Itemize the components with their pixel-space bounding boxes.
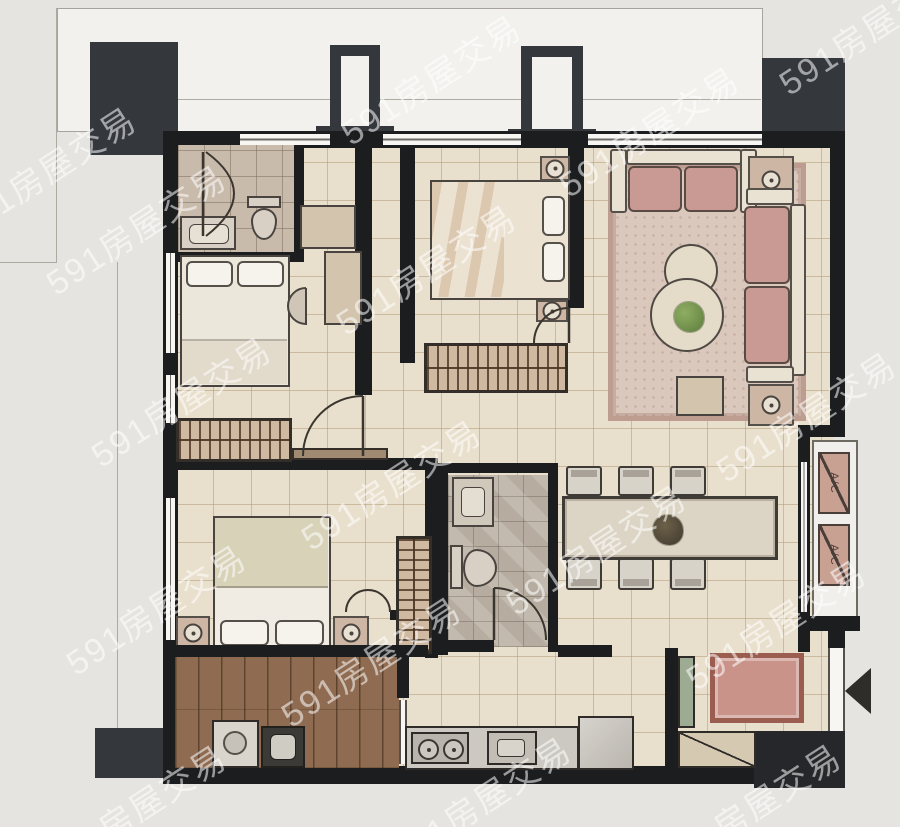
master-console-shelf: [292, 448, 388, 460]
ac-platform-top-wall: [798, 425, 845, 437]
dining-centerpiece-plant: [653, 515, 683, 545]
bedroom2-nightstand-top: [540, 156, 570, 181]
dining-chair: [618, 466, 654, 496]
kitchen-sink: [487, 731, 537, 765]
master-desk: [300, 205, 356, 249]
ac-platform: A/C A/C: [812, 440, 858, 630]
bathroom2-bottom-wall: [438, 640, 494, 652]
sofa-armrest-top: [746, 188, 794, 205]
right-wall-upper: [830, 131, 845, 437]
utility-sink-basin: [270, 734, 296, 760]
ac-unit-label: A/C: [828, 544, 840, 565]
dining-chair: [670, 466, 706, 496]
dining-chair: [670, 558, 706, 590]
bathroom2-top-wall: [438, 463, 558, 473]
plant-icon: [674, 302, 704, 332]
bathroom2-right-wall: [548, 463, 558, 652]
master-wardrobe: [176, 418, 292, 462]
balcony-outline-inner-line: [171, 99, 761, 101]
master-bed-pillow: [237, 261, 284, 287]
top-window-3: [588, 131, 762, 148]
site-outline-left-lower: [117, 262, 119, 728]
dining-table: [562, 496, 778, 560]
master-bed-blanket: [182, 341, 287, 384]
sink-basin: [461, 487, 485, 517]
bedroom2-pillow: [542, 196, 565, 236]
bedroom3-bed: [213, 516, 331, 650]
coffee-table-large: [650, 278, 724, 352]
master-bed-pillow: [186, 261, 233, 287]
bedroom2-pillow: [542, 242, 565, 282]
entry-cabinet: [678, 731, 756, 768]
sofa-seat: [744, 286, 790, 364]
entry-arrow-icon: [845, 668, 871, 714]
sofa-armrest-bottom: [746, 366, 794, 383]
left-window-2: [163, 375, 178, 423]
bedroom3-pillow: [275, 620, 324, 646]
utility-top-wall: [163, 645, 428, 657]
lamp-icon: [762, 396, 781, 415]
doormat: [710, 653, 804, 723]
master-vanity-table: [324, 251, 362, 325]
sofa-back-top: [626, 149, 742, 165]
bedroom2-left-wall: [400, 145, 415, 363]
sofa-armrest-left: [610, 149, 627, 213]
ac-unit-2: A/C: [818, 524, 850, 586]
master-bed: [180, 255, 290, 387]
entry-wall-upper: [828, 628, 845, 648]
stove-burner-icon: [418, 739, 439, 760]
master-toilet-tank: [247, 196, 281, 208]
bedroom3-duvet: [215, 518, 328, 588]
ac-unit-1: A/C: [818, 452, 850, 514]
floor-plan-image: A/C A/C: [0, 0, 900, 827]
fridge: [578, 716, 634, 770]
bathroom2-toilet-tank: [450, 545, 463, 589]
vanity-basin: [189, 224, 229, 244]
washing-machine: [212, 720, 259, 768]
bedroom2-duvet-texture: [432, 182, 504, 297]
dining-chair: [566, 558, 602, 590]
bathroom2-left-wall: [438, 463, 448, 655]
bedroom2-right-wall: [568, 145, 584, 308]
sofa-back-right: [790, 204, 806, 376]
bedroom3-pillow: [220, 620, 269, 646]
lamp-icon: [342, 624, 361, 643]
bedroom2-bed: [430, 180, 570, 300]
utility-sink: [261, 726, 305, 768]
sofa-seat: [628, 166, 682, 212]
master-bath-vanity-sink: [180, 216, 236, 250]
stove-burner-icon: [443, 739, 464, 760]
bedroom2-wardrobe: [424, 343, 568, 393]
ac-unit-label: A/C: [828, 472, 840, 493]
lamp-icon: [546, 159, 565, 178]
side-table: [676, 376, 724, 416]
bedroom3-wardrobe: [396, 536, 432, 654]
dining-chair: [566, 466, 602, 496]
sofa-seat: [684, 166, 738, 212]
dining-chair: [618, 558, 654, 590]
left-window-1: [163, 253, 178, 353]
kitchen-sink-basin: [497, 739, 525, 757]
entry-partition-wall: [665, 648, 678, 772]
site-outline-left: [56, 8, 58, 262]
corner-table-bottom-right: [748, 384, 794, 426]
washer-drum: [223, 731, 247, 755]
stove: [411, 732, 469, 764]
bathroom2-sink: [452, 477, 494, 527]
right-window: [798, 462, 810, 612]
lamp-icon: [184, 624, 203, 643]
shoe-cabinet: [678, 656, 695, 728]
lamp-icon: [762, 171, 781, 190]
lamp-icon: [543, 302, 562, 321]
entry-door-opening: [828, 648, 845, 732]
sofa-seat: [744, 206, 790, 284]
bedroom2-nightstand-bottom: [536, 300, 568, 322]
kitchen-counter: [405, 726, 579, 770]
kitchen-dining-wall: [558, 645, 612, 657]
utility-kitchen-divider: [397, 648, 409, 698]
column-block-bottom-left: [95, 728, 163, 778]
site-outline-step: [0, 262, 57, 264]
entry-corner-block: [754, 731, 845, 788]
